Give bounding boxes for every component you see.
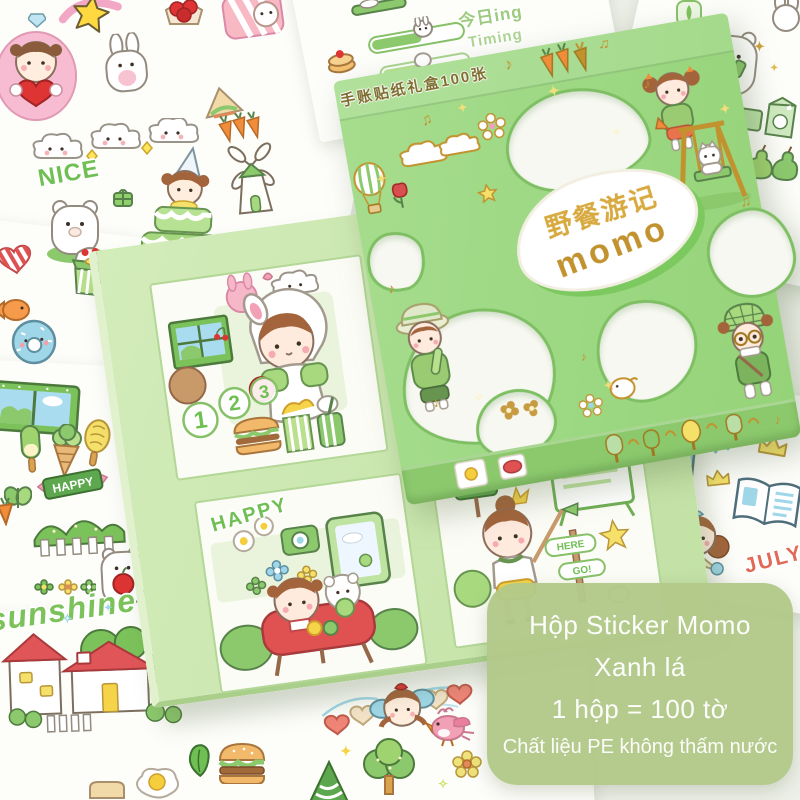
gold-star-icon	[475, 181, 500, 206]
info-color-variant: Xanh lá	[594, 652, 686, 683]
sticker-pack-happy-picnic: HAPPY	[194, 473, 428, 694]
sparkle-icon: ✦	[104, 604, 112, 614]
music-note-icon: ♪	[580, 350, 588, 363]
lid-top-face: 手账贴纸礼盒100张 ♪ ♫	[333, 13, 795, 469]
sparkle-icon: ✦	[719, 101, 732, 116]
svg-text:♪: ♪	[773, 411, 782, 427]
sticker-box-lid: 手账贴纸礼盒100张 ♪ ♫	[333, 13, 800, 506]
pink-bird-sticker	[424, 706, 476, 748]
sushi-sticker-icon	[497, 452, 529, 480]
fried-egg-sticker	[134, 766, 180, 800]
pine-tree-sticker	[304, 760, 354, 800]
info-material: Chất liệu PE không thấm nước	[503, 736, 777, 759]
gold-clouds-icon	[392, 126, 483, 176]
info-product-name: Hộp Sticker Momo	[529, 610, 751, 641]
sticker-pack-bunny-girl: 1 2 3	[149, 254, 389, 481]
lid-girl-beanie-icon	[710, 295, 791, 409]
open-book-sticker	[729, 473, 800, 534]
white-flower-icon	[577, 392, 605, 420]
striped-heart-sticker	[0, 240, 36, 281]
carrot-sticker	[0, 496, 16, 526]
lid-cutout-hole	[362, 227, 430, 296]
sparkle-icon: ✧	[473, 391, 485, 405]
gem-sticker	[28, 12, 46, 28]
sparkle-icon: ✦	[376, 172, 388, 186]
tulip-icon	[387, 178, 414, 211]
flower-sticker	[452, 750, 482, 780]
crown-sticker	[703, 467, 733, 490]
music-note-icon: ♫	[598, 36, 610, 52]
burger-sticker	[216, 740, 268, 784]
product-info-card: Hộp Sticker Momo Xanh lá 1 hộp = 100 tờ …	[487, 583, 793, 785]
sparkle-icon: ✦	[754, 40, 765, 53]
carrots-sticker	[212, 109, 264, 147]
bunny-head-sticker	[766, 0, 800, 32]
music-note-icon: ♫	[419, 111, 435, 129]
popsicle-sticker	[14, 423, 48, 477]
pancake-sticker	[324, 44, 359, 79]
bread-sticker	[86, 780, 128, 800]
sparkle-icon: ✦	[770, 64, 778, 74]
egg-sticker-icon	[453, 457, 489, 490]
product-photo-sticker-box: NICE	[0, 0, 800, 800]
bunny-sticker	[95, 31, 156, 98]
white-flower-icon	[476, 111, 508, 143]
round-tree-sticker	[360, 738, 418, 800]
sparkle-icon: ✧	[62, 612, 73, 625]
sparkle-icon: ✧	[611, 127, 622, 139]
donut-sticker	[8, 316, 60, 368]
sparkle-icon: ✦	[547, 83, 561, 99]
music-note-icon: ♫	[739, 193, 753, 210]
info-quantity: 1 hộp = 100 tờ	[552, 694, 729, 725]
sparkle-icon: ✦	[340, 744, 352, 758]
gift-sticker	[112, 186, 134, 208]
lettuce-leaf-sticker	[182, 740, 215, 780]
sparkle-icon: ✦	[603, 380, 614, 392]
tomato-basket-sticker	[160, 0, 208, 28]
girl-with-heart-sticker	[0, 28, 78, 122]
sparkle-icon: ✦	[457, 101, 469, 115]
sparkle-icon: ✧	[438, 778, 448, 790]
